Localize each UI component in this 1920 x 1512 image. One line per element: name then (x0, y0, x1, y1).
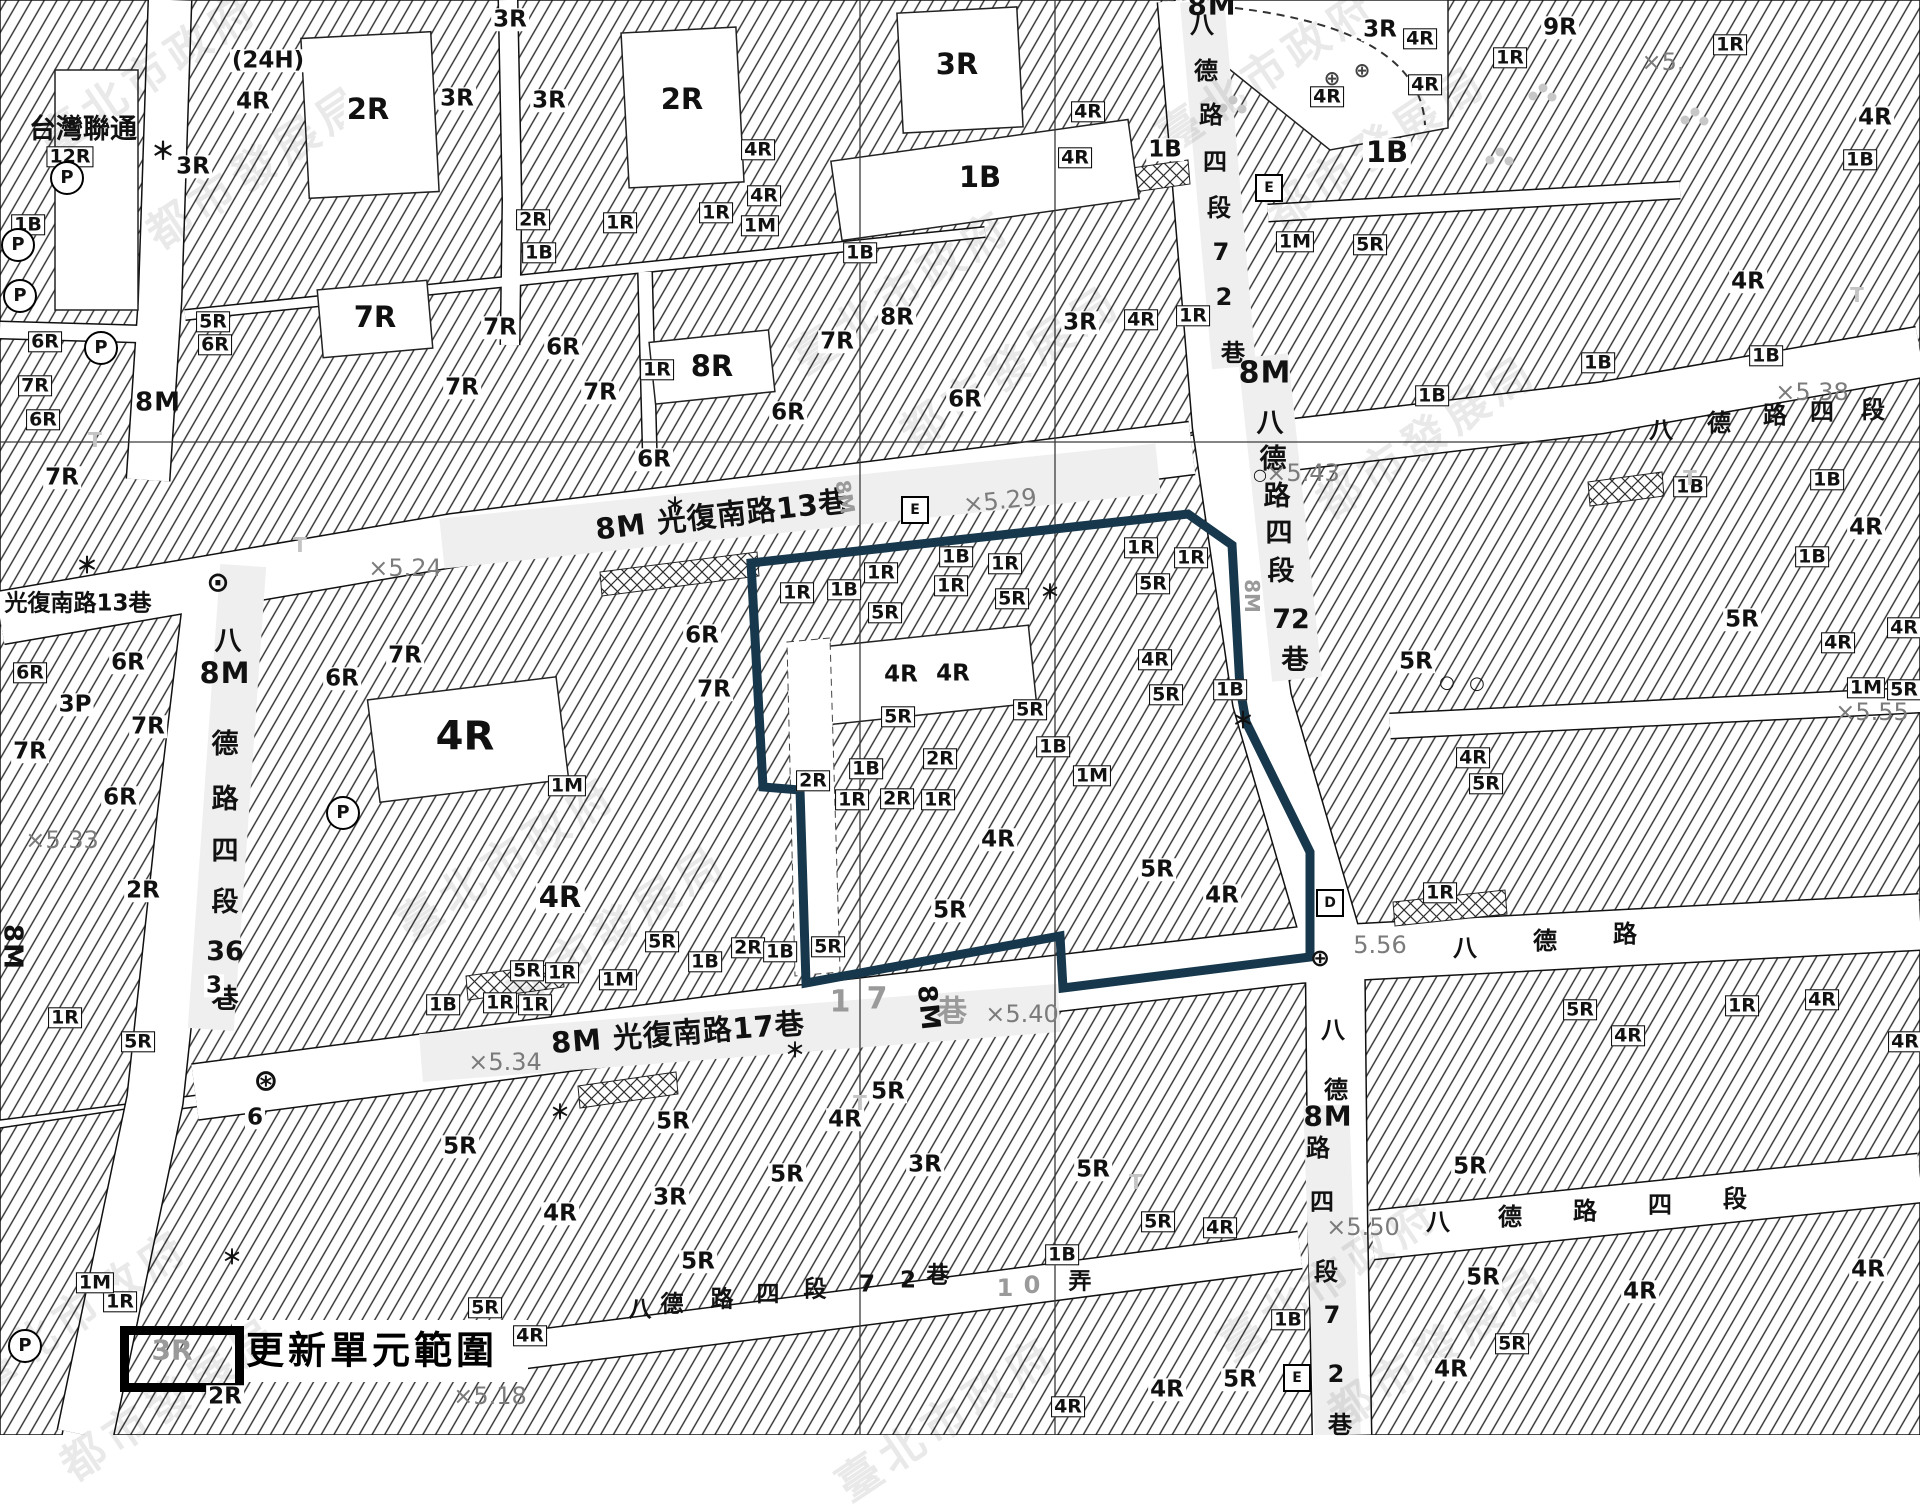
legend-backdrop (232, 1320, 528, 1382)
road-minor-v1 (148, 0, 170, 480)
map-base-drawing (0, 0, 1920, 1435)
road-minor-v3 (645, 272, 650, 462)
road-minor-west (0, 330, 140, 334)
cadastral-map: 更新單元範圍 臺北市政府都市發展局臺北市政府都市發展局臺北市政府都市發展局臺北市… (0, 0, 1920, 1435)
road-minor-v2 (508, 0, 512, 345)
legend-swatch (120, 1326, 244, 1392)
